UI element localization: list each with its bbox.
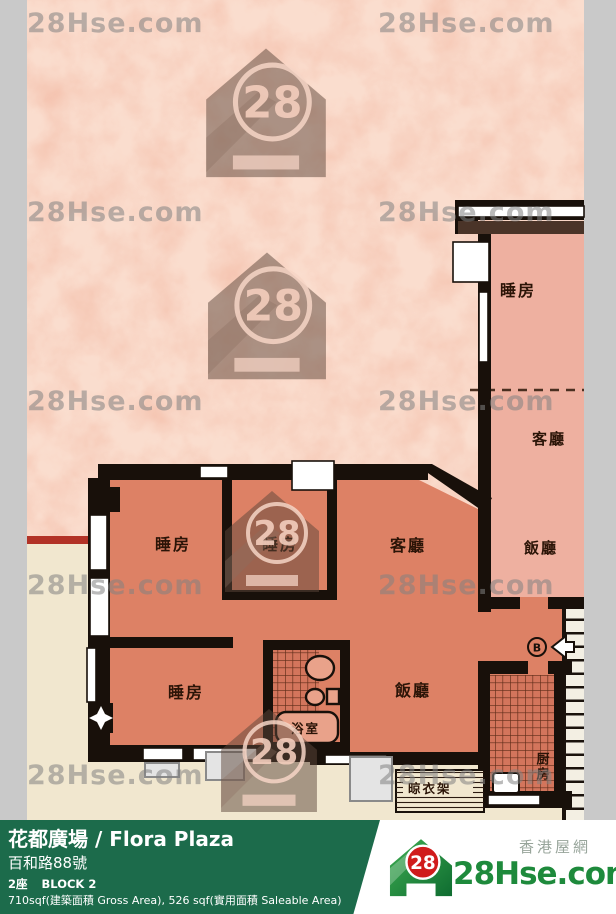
floor-plan-page: 28 [0, 0, 616, 914]
site-brand: 28 28Hse.com 香港屋網 [385, 830, 613, 910]
brand-logo-number: 28 [410, 853, 436, 874]
room-label-kitchen: 厨房 [534, 752, 550, 782]
air-conditioner-icon [89, 703, 113, 733]
room-label-living-room: 客廳 [390, 536, 426, 555]
entrance-marker-letter: B [533, 642, 541, 655]
room-label-dining-room: 飯廳 [394, 681, 431, 700]
kitchen-counter [493, 773, 519, 793]
property-info-panel: 花都廣場 / Flora Plaza 百和路88號 2座BLOCK 2 710s… [0, 820, 380, 914]
room-label-bedroom-1: 睡房 [155, 535, 191, 554]
property-area: 710sqf(建築面積 Gross Area), 526 sqf(實用面積 Sa… [8, 892, 342, 908]
toilet-tank [327, 689, 339, 704]
room-label-drying-rack: 晾衣架 [408, 781, 452, 796]
room-label-adjacent-living: 客廳 [531, 430, 566, 448]
property-block: 2座BLOCK 2 [8, 876, 110, 892]
brand-site-name: 28Hse.com [453, 856, 616, 892]
room-label-adjacent-bedroom: 睡房 [500, 281, 536, 300]
block-number-en: BLOCK 2 [42, 877, 97, 891]
property-address: 百和路88號 [8, 852, 87, 873]
toilet [306, 689, 324, 705]
property-title: 花都廣場 / Flora Plaza [8, 823, 234, 852]
brand-site-name-cn: 香港屋網 [519, 836, 591, 857]
basin [306, 656, 334, 680]
block-number-cn: 2座 [8, 877, 28, 891]
room-label-bedroom-3: 睡房 [168, 683, 204, 702]
drying-rack: 晾衣架 [396, 770, 484, 812]
floor-plan-image: 28 [0, 0, 616, 820]
info-bar: 花都廣場 / Flora Plaza 百和路88號 2座BLOCK 2 710s… [0, 820, 616, 914]
room-label-adjacent-dining: 飯廳 [523, 539, 558, 557]
brand-house-icon: 28 [387, 836, 455, 900]
